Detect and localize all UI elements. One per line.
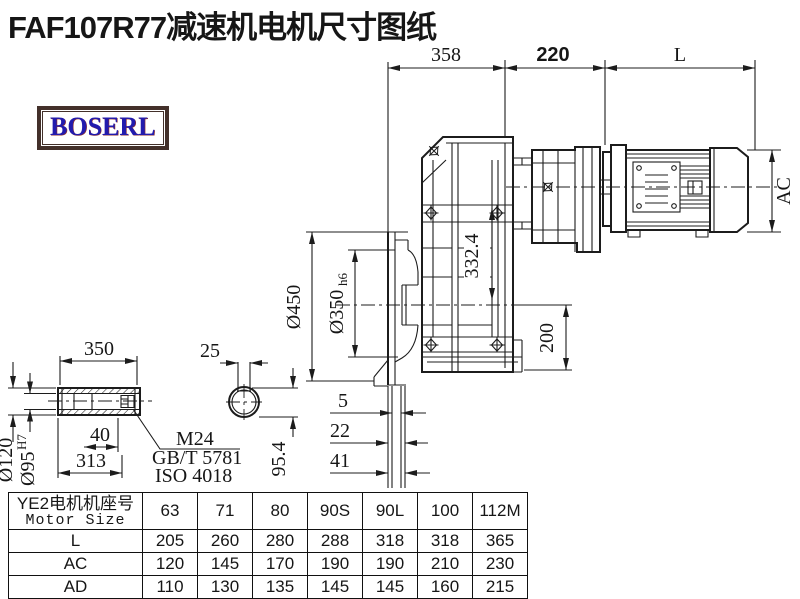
- table-col-header: 90S: [308, 493, 363, 530]
- table-cell: 190: [363, 553, 418, 576]
- dim-5-label: 5: [338, 390, 348, 412]
- shaft-dim-40-label: 40: [90, 424, 110, 446]
- table-header-en: Motor Size: [9, 513, 142, 529]
- table-cell: 210: [418, 553, 473, 576]
- motor-adapter: [513, 147, 612, 252]
- dim-450-label: Ø450: [283, 285, 305, 329]
- table-cell: 260: [198, 530, 253, 553]
- dim-AC: AC: [747, 150, 795, 232]
- output-flange: [374, 232, 418, 386]
- shaft-dim-95-tolerance: H7: [14, 434, 29, 450]
- shaft-dim-95-label: Ø95: [17, 452, 39, 486]
- table-row-label: AC: [9, 553, 143, 576]
- table-col-header: 71: [198, 493, 253, 530]
- dim-25-label: 25: [200, 340, 220, 362]
- motor-size-table: YE2电机机座号 Motor Size 63 71 80 90S 90L 100…: [8, 492, 528, 599]
- dim-332-label: 332.4: [461, 234, 483, 279]
- table-row-label: L: [9, 530, 143, 553]
- table-cell: 160: [418, 576, 473, 599]
- table-cell: 145: [198, 553, 253, 576]
- dim-954-label: 95.4: [268, 442, 290, 477]
- table-header-motor-size: YE2电机机座号 Motor Size: [9, 493, 143, 530]
- table-row-AC: AC 120 145 170 190 190 210 230: [9, 553, 528, 576]
- table-header-row: YE2电机机座号 Motor Size 63 71 80 90S 90L 100…: [9, 493, 528, 530]
- table-cell: 205: [143, 530, 198, 553]
- dim-350-label: Ø350: [326, 290, 348, 334]
- motor: [603, 145, 748, 232]
- table-col-header: 100: [418, 493, 473, 530]
- table-col-header: 80: [253, 493, 308, 530]
- table-col-header: 112M: [473, 493, 528, 530]
- dim-200-label: 200: [536, 323, 558, 353]
- table-cell: 110: [143, 576, 198, 599]
- table-cell: 170: [253, 553, 308, 576]
- table-cell: 215: [473, 576, 528, 599]
- table-cell: 280: [253, 530, 308, 553]
- dim-22-label: 22: [330, 420, 350, 442]
- table-cell: 318: [418, 530, 473, 553]
- table-cell: 145: [308, 576, 363, 599]
- table-row-AD: AD 110 130 135 145 145 160 215: [9, 576, 528, 599]
- bolt-icon: [424, 206, 439, 221]
- table-cell: 130: [198, 576, 253, 599]
- table-cell: 365: [473, 530, 528, 553]
- table-cell: 135: [253, 576, 308, 599]
- dim-41-label: 41: [330, 450, 350, 472]
- table-cell: 230: [473, 553, 528, 576]
- page: { "title": "FAF107R77减速机电机尺寸图纸", "logo":…: [0, 0, 800, 596]
- technical-drawing: 358 220 L AC 332.4 Ø450 Ø350: [0, 0, 800, 492]
- bolt-icon: [424, 141, 443, 160]
- standard-iso-label: ISO 4018: [155, 465, 232, 487]
- dim-358-label: 358: [431, 44, 461, 66]
- dim-350-tolerance: h6: [335, 273, 350, 287]
- table-cell: 190: [308, 553, 363, 576]
- table-row-label: AD: [9, 576, 143, 599]
- shaft-dim-350-label: 350: [84, 338, 114, 360]
- shaft-dim-313-label: 313: [76, 450, 106, 472]
- dim-AC-label: AC: [773, 177, 795, 205]
- table-col-header: 63: [143, 493, 198, 530]
- dim-L-label: L: [674, 44, 686, 66]
- table-cell: 288: [308, 530, 363, 553]
- table-cell: 120: [143, 553, 198, 576]
- table-col-header: 90L: [363, 493, 418, 530]
- table-cell: 145: [363, 576, 418, 599]
- bolt-icon: [424, 338, 439, 353]
- dim-220-label: 220: [536, 44, 569, 66]
- dim-5-22-41: 5 22 41: [330, 386, 430, 488]
- table-cell: 318: [363, 530, 418, 553]
- bolt-icon: [490, 338, 505, 353]
- table-header-cn: YE2电机机座号: [9, 494, 142, 513]
- fan-cowl: [710, 148, 748, 232]
- table-row-L: L 205 260 280 288 318 318 365: [9, 530, 528, 553]
